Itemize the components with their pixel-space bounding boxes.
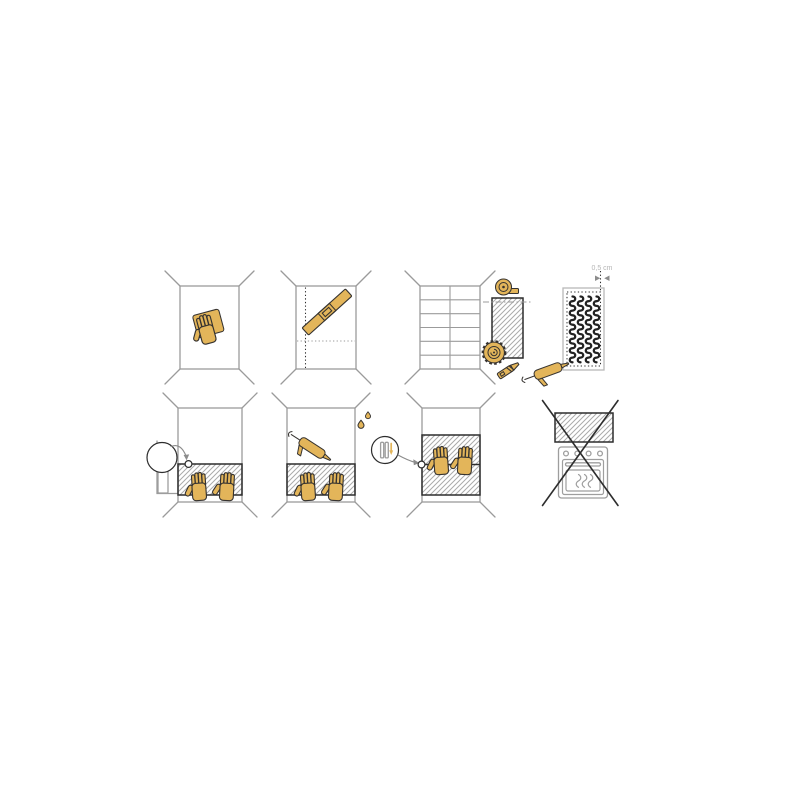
wall-perspective (281, 271, 371, 384)
step-7-join-second-panel (372, 393, 496, 517)
nozzle-detail-circle (147, 443, 177, 473)
oven-knob-icon (564, 451, 569, 456)
arrow-right-icon (595, 276, 600, 282)
step-4-apply-adhesive: 0,5 cm (520, 265, 612, 392)
step-6-seal-top-edge (272, 393, 371, 517)
instruction-figure: 0,5 cm (0, 0, 800, 800)
detail-arrow (398, 455, 416, 463)
circular-saw-icon (483, 341, 505, 363)
step-2-mark-guide-lines (281, 271, 371, 384)
arrow-left-icon (604, 276, 609, 282)
detail-arrowhead-icon (184, 454, 190, 460)
water-drop-icon (358, 420, 364, 428)
step-3-measure-and-cut (405, 271, 532, 384)
water-drop-icon (365, 412, 370, 419)
hatched-panel (555, 413, 613, 442)
seam-marker-circle (418, 461, 425, 468)
spirit-level-icon (302, 289, 352, 335)
step-8-not-above-oven (543, 401, 619, 506)
step-1-clean-wall (165, 271, 254, 384)
corner-marker-circle (185, 461, 192, 468)
step-5-position-panel (147, 393, 257, 517)
oven-knob-icon (586, 451, 591, 456)
instruction-sheet: 0,5 cm (0, 0, 800, 800)
sanding-sponge-hand-icon (187, 309, 226, 347)
tiled-wall (405, 271, 495, 384)
tape-measure-icon (496, 279, 519, 295)
oven-knob-icon (598, 451, 603, 456)
caulking-gun-icon (520, 359, 572, 392)
utility-knife-icon (497, 361, 520, 379)
seam-detail-circle (372, 437, 399, 464)
measurement-label: 0,5 cm (591, 265, 612, 272)
